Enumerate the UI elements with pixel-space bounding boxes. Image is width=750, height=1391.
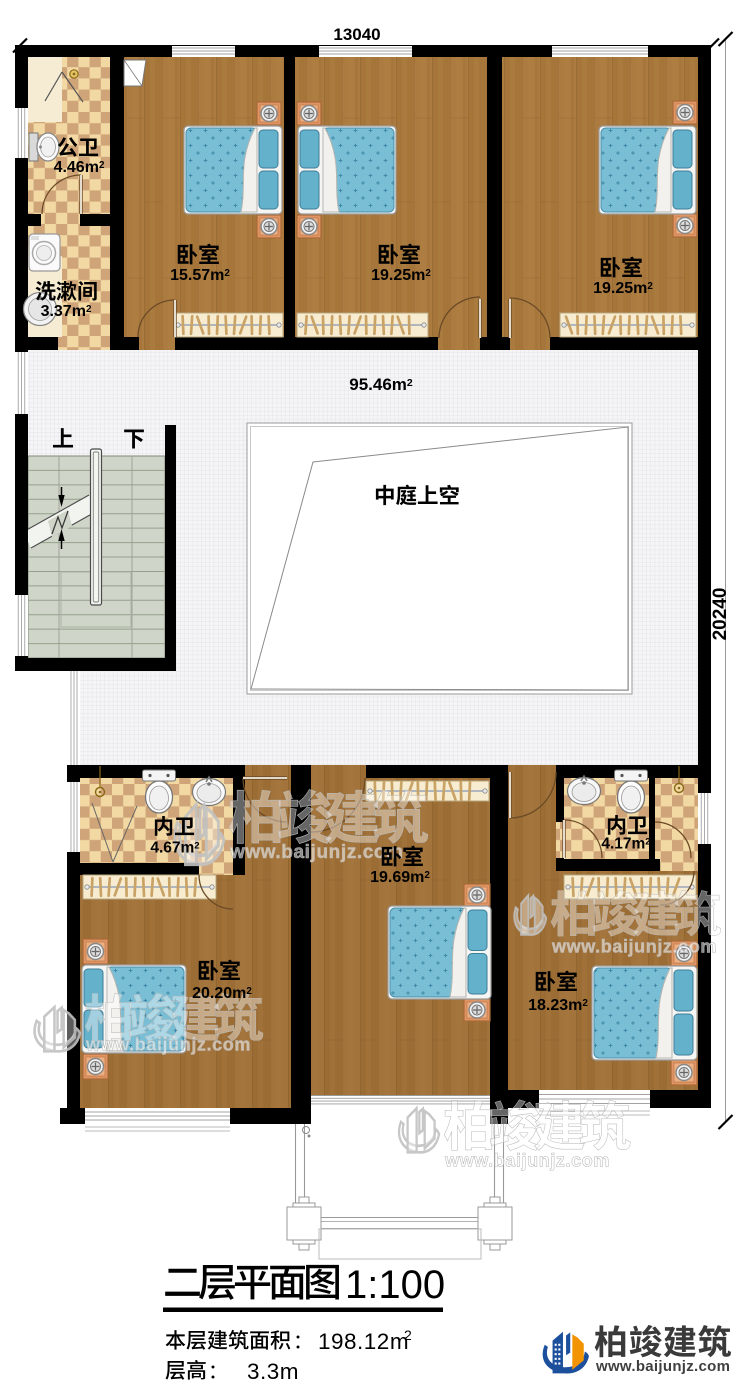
svg-text:19.25m2: 19.25m2 <box>371 267 431 284</box>
svg-text:19.69m2: 19.69m2 <box>370 869 430 886</box>
svg-text:198.12m: 198.12m <box>318 1329 409 1354</box>
svg-text:3.37m2: 3.37m2 <box>41 303 92 320</box>
svg-text:4.17m2: 4.17m2 <box>601 836 650 853</box>
svg-text:13040: 13040 <box>333 25 380 44</box>
svg-text:95.46m2: 95.46m2 <box>349 375 413 394</box>
svg-text:www.baijunjz.com: www.baijunjz.com <box>229 842 404 863</box>
svg-text:4.46m2: 4.46m2 <box>54 159 105 176</box>
svg-text:：: ： <box>293 1331 313 1353</box>
svg-text:19.25m2: 19.25m2 <box>593 280 653 297</box>
svg-text:2: 2 <box>404 1327 412 1343</box>
svg-text:4.67m2: 4.67m2 <box>150 840 199 857</box>
svg-text:www.baijunjz.com: www.baijunjz.com <box>85 1034 251 1054</box>
svg-text:20240: 20240 <box>710 588 731 641</box>
svg-text:1:100: 1:100 <box>345 1263 445 1307</box>
svg-text:15.57m2: 15.57m2 <box>170 267 230 284</box>
svg-text:www.baijunjz.com: www.baijunjz.com <box>444 1150 610 1170</box>
svg-text:www.baijunjz.com: www.baijunjz.com <box>595 1358 730 1375</box>
svg-text:20.20m2: 20.20m2 <box>192 985 252 1002</box>
svg-text:www.baijunjz.com: www.baijunjz.com <box>551 936 717 956</box>
svg-text:3.3m: 3.3m <box>247 1359 299 1384</box>
svg-text:18.23m2: 18.23m2 <box>528 997 588 1014</box>
svg-text:：: ： <box>208 1361 228 1383</box>
